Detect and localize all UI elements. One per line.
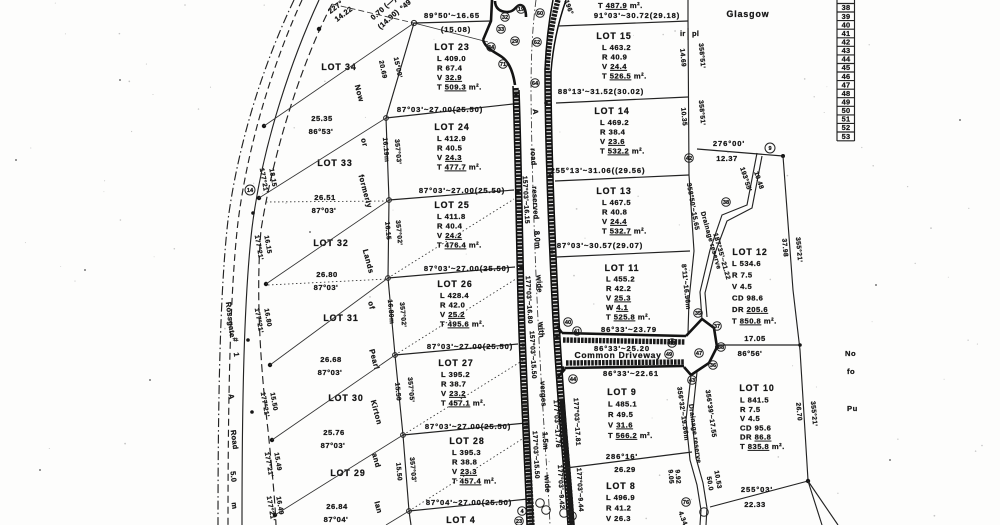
- svg-text:R 67.4: R 67.4: [437, 64, 463, 73]
- svg-text:R 38.4: R 38.4: [600, 128, 626, 137]
- svg-text:26.80: 26.80: [316, 270, 338, 279]
- svg-text:pl: pl: [692, 29, 699, 38]
- svg-text:5.0: 5.0: [228, 471, 238, 483]
- svg-text:wide: wide: [542, 474, 552, 493]
- svg-text:R 42.0: R 42.0: [440, 301, 465, 310]
- svg-text:L 841.5: L 841.5: [740, 396, 769, 405]
- svg-text:LOT 27: LOT 27: [438, 358, 473, 368]
- svg-text:L 395.2: L 395.2: [441, 370, 470, 379]
- svg-text:87°03'~30.57(29.07): 87°03'~30.57(29.07): [557, 241, 643, 250]
- svg-text:38: 38: [718, 345, 724, 351]
- svg-text:V 25.3: V 25.3: [606, 294, 631, 303]
- svg-text:Glasgow: Glasgow: [727, 9, 770, 19]
- svg-text:LOT 13: LOT 13: [596, 186, 631, 196]
- svg-text:V 4.5: V 4.5: [732, 282, 753, 291]
- svg-text:49: 49: [666, 352, 672, 358]
- svg-text:R 42.2: R 42.2: [606, 284, 631, 293]
- svg-text:62: 62: [534, 40, 540, 46]
- svg-text:26.84: 26.84: [326, 502, 348, 511]
- svg-text:38: 38: [723, 200, 729, 206]
- svg-text:87°04'~27.00(25.50): 87°04'~27.00(25.50): [426, 498, 512, 507]
- svg-text:33: 33: [498, 27, 504, 33]
- svg-text:T 495.6 m².: T 495.6 m².: [440, 320, 485, 329]
- svg-text:R 40.5: R 40.5: [437, 144, 463, 153]
- svg-text:9.05: 9.05: [666, 469, 674, 484]
- svg-text:8.0m: 8.0m: [533, 231, 543, 250]
- svg-text:LOT 30: LOT 30: [328, 393, 363, 403]
- svg-text:T 457.1 m².: T 457.1 m².: [441, 399, 486, 408]
- svg-text:T 526.5 m².: T 526.5 m².: [602, 72, 647, 81]
- svg-text:R 40.9: R 40.9: [602, 53, 627, 62]
- svg-text:71: 71: [500, 62, 506, 68]
- svg-text:T 509.3 m².: T 509.3 m².: [437, 83, 482, 92]
- svg-text:87°03': 87°03': [312, 206, 337, 215]
- svg-text:L 463.2: L 463.2: [602, 43, 631, 52]
- svg-text:17.05: 17.05: [744, 334, 766, 343]
- svg-text:V 24.4: V 24.4: [602, 217, 627, 226]
- svg-text:14: 14: [247, 188, 254, 194]
- svg-text:91°03'~30.72(29.18): 91°03'~30.72(29.18): [594, 11, 680, 20]
- svg-text:DR 205.6: DR 205.6: [732, 305, 768, 314]
- svg-text:22.33: 22.33: [744, 500, 766, 509]
- svg-text:36: 36: [710, 363, 716, 369]
- svg-text:255°03': 255°03': [741, 485, 773, 494]
- svg-text:V 26.3: V 26.3: [606, 514, 631, 523]
- svg-text:23: 23: [516, 519, 522, 525]
- svg-text:LOT 24: LOT 24: [434, 122, 469, 132]
- svg-text:87°03'~27.00(25.50): 87°03'~27.00(25.50): [397, 105, 483, 114]
- svg-text:reserved: reserved: [530, 186, 541, 220]
- svg-text:LOT 14: LOT 14: [594, 106, 629, 116]
- svg-text:L 469.2: L 469.2: [600, 118, 629, 127]
- svg-text:L 455.2: L 455.2: [606, 275, 635, 284]
- svg-text:41: 41: [574, 329, 580, 335]
- svg-text:LOT 28: LOT 28: [449, 436, 484, 446]
- svg-text:L 485.1: L 485.1: [608, 400, 637, 409]
- svg-text:verges: verges: [538, 381, 548, 407]
- svg-text:34: 34: [488, 45, 495, 51]
- svg-text:87°03': 87°03': [318, 368, 343, 377]
- svg-text:Common Driveway: Common Driveway: [574, 350, 661, 360]
- svg-text:47: 47: [696, 351, 702, 357]
- svg-text:V 23.6: V 23.6: [600, 137, 625, 146]
- svg-text:87°03'~27.00(25.50): 87°03'~27.00(25.50): [425, 422, 511, 431]
- svg-text:R 40.4: R 40.4: [437, 222, 463, 231]
- svg-text:29: 29: [512, 39, 518, 45]
- svg-text:L 412.9: L 412.9: [437, 134, 466, 143]
- svg-text:LOT 4: LOT 4: [446, 515, 475, 525]
- svg-text:L 411.8: L 411.8: [437, 212, 466, 221]
- svg-text:wide: wide: [534, 274, 544, 293]
- svg-text:53: 53: [842, 132, 851, 141]
- svg-text:T 835.8 m².: T 835.8 m².: [740, 442, 785, 451]
- svg-text:V 23.3: V 23.3: [452, 467, 477, 476]
- svg-text:LOT 9: LOT 9: [607, 387, 636, 397]
- svg-text:LOT 15: LOT 15: [596, 31, 631, 41]
- svg-text:ir: ir: [680, 29, 686, 38]
- svg-text:86°33'~22.61: 86°33'~22.61: [603, 369, 659, 378]
- svg-text:R 7.5: R 7.5: [732, 271, 753, 280]
- svg-text:32: 32: [502, 15, 508, 21]
- svg-text:86°56': 86°56': [738, 349, 763, 358]
- svg-text:with: with: [537, 321, 547, 339]
- svg-text:DR 86.8: DR 86.8: [740, 433, 771, 442]
- svg-text:R 38.7: R 38.7: [441, 380, 466, 389]
- svg-text:L 395.3: L 395.3: [452, 448, 481, 457]
- svg-text:87°03'~27.00(25.50): 87°03'~27.00(25.50): [419, 186, 505, 195]
- svg-text:35: 35: [695, 311, 701, 317]
- svg-text:W 4.1: W 4.1: [606, 303, 629, 312]
- svg-text:R 7.5: R 7.5: [740, 405, 761, 414]
- svg-text:9: 9: [768, 146, 771, 152]
- svg-text:276°00': 276°00': [713, 139, 745, 148]
- svg-text:fo: fo: [847, 367, 855, 376]
- svg-text:LOT 23: LOT 23: [434, 42, 469, 52]
- svg-text:LOT 25: LOT 25: [434, 200, 469, 210]
- svg-text:R 49.5: R 49.5: [608, 410, 634, 419]
- svg-text:26.68: 26.68: [320, 355, 342, 364]
- svg-text:64: 64: [532, 81, 539, 87]
- svg-text:89°50'~16.65: 89°50'~16.65: [424, 11, 480, 20]
- svg-text:76: 76: [683, 500, 689, 506]
- svg-text:87°04': 87°04': [324, 515, 349, 524]
- svg-text:V 24.4: V 24.4: [602, 62, 627, 71]
- svg-text:T 532.7 m².: T 532.7 m².: [602, 227, 647, 236]
- svg-text:CD 98.6: CD 98.6: [732, 294, 763, 303]
- svg-text:LOT 8: LOT 8: [606, 481, 635, 491]
- svg-text:T 476.4 m².: T 476.4 m².: [437, 241, 482, 250]
- svg-text:60: 60: [537, 11, 543, 17]
- svg-text:V 24.2: V 24.2: [437, 231, 462, 240]
- svg-text:V 24.3: V 24.3: [437, 153, 462, 162]
- svg-text:T 566.2 m².: T 566.2 m².: [608, 431, 653, 440]
- svg-text:V 32.9: V 32.9: [437, 73, 462, 82]
- svg-text:T 525.8 m².: T 525.8 m².: [606, 313, 651, 322]
- svg-text:86°33'~23.79: 86°33'~23.79: [601, 325, 657, 334]
- svg-text:R 41.2: R 41.2: [606, 504, 631, 513]
- svg-text:LOT 34: LOT 34: [321, 62, 356, 72]
- svg-text:A: A: [531, 109, 540, 115]
- svg-text:87°03': 87°03': [321, 441, 346, 450]
- svg-text:T 532.2 m².: T 532.2 m².: [600, 147, 645, 156]
- svg-text:87°03': 87°03': [314, 283, 339, 292]
- svg-text:25.35: 25.35: [311, 114, 333, 123]
- svg-text:LOT 12: LOT 12: [732, 247, 767, 257]
- svg-text:L 496.9: L 496.9: [606, 493, 635, 502]
- svg-text:CD 95.6: CD 95.6: [740, 423, 771, 432]
- svg-text:87°03'~27.00(25.50): 87°03'~27.00(25.50): [427, 342, 513, 351]
- svg-text:Pu: Pu: [847, 404, 858, 413]
- svg-text:No: No: [845, 349, 856, 358]
- svg-text:V 31.6: V 31.6: [608, 421, 633, 430]
- svg-text:LOT 33: LOT 33: [317, 158, 352, 168]
- svg-text:26.51: 26.51: [314, 193, 336, 202]
- svg-text:86°53': 86°53': [309, 127, 334, 136]
- svg-text:V 25.2: V 25.2: [440, 310, 465, 319]
- svg-text:T 487.9 m².: T 487.9 m².: [598, 1, 643, 10]
- svg-text:LOT 11: LOT 11: [605, 263, 640, 273]
- svg-text:286°16': 286°16': [606, 452, 638, 461]
- svg-text:40: 40: [565, 320, 571, 326]
- svg-text:V 4.5: V 4.5: [740, 414, 761, 423]
- svg-text:LOT 26: LOT 26: [437, 279, 472, 289]
- svg-text:R 40.8: R 40.8: [602, 208, 627, 217]
- svg-text:37: 37: [714, 324, 720, 330]
- svg-text:L 467.5: L 467.5: [602, 198, 631, 207]
- svg-text:LOT 10: LOT 10: [739, 383, 774, 393]
- svg-text:V 23.2: V 23.2: [441, 389, 466, 398]
- svg-text:88°13'~31.52(30.02): 88°13'~31.52(30.02): [558, 87, 644, 96]
- svg-text:48: 48: [669, 341, 675, 347]
- svg-text:R 38.8: R 38.8: [452, 458, 477, 467]
- svg-text:1.5m: 1.5m: [541, 432, 551, 451]
- svg-text:L 409.0: L 409.0: [437, 54, 466, 63]
- svg-text:m: m: [230, 502, 240, 510]
- svg-text:T 457.4 m².: T 457.4 m².: [452, 477, 497, 486]
- svg-text:255°13'~31.06((29.56): 255°13'~31.06((29.56): [551, 166, 646, 175]
- svg-text:12.37: 12.37: [716, 154, 738, 163]
- svg-text:42: 42: [686, 156, 692, 162]
- svg-text:25.76: 25.76: [323, 428, 345, 437]
- svg-text:T 477.7 m².: T 477.7 m².: [437, 163, 482, 172]
- svg-text:road: road: [529, 148, 539, 166]
- svg-text:44: 44: [570, 377, 577, 383]
- svg-text:T 850.8 m².: T 850.8 m².: [732, 317, 777, 326]
- svg-text:L 428.4: L 428.4: [440, 291, 469, 300]
- svg-text:(15.08): (15.08): [441, 25, 471, 34]
- svg-text:26.29: 26.29: [614, 465, 636, 474]
- svg-text:L 534.6: L 534.6: [732, 259, 761, 268]
